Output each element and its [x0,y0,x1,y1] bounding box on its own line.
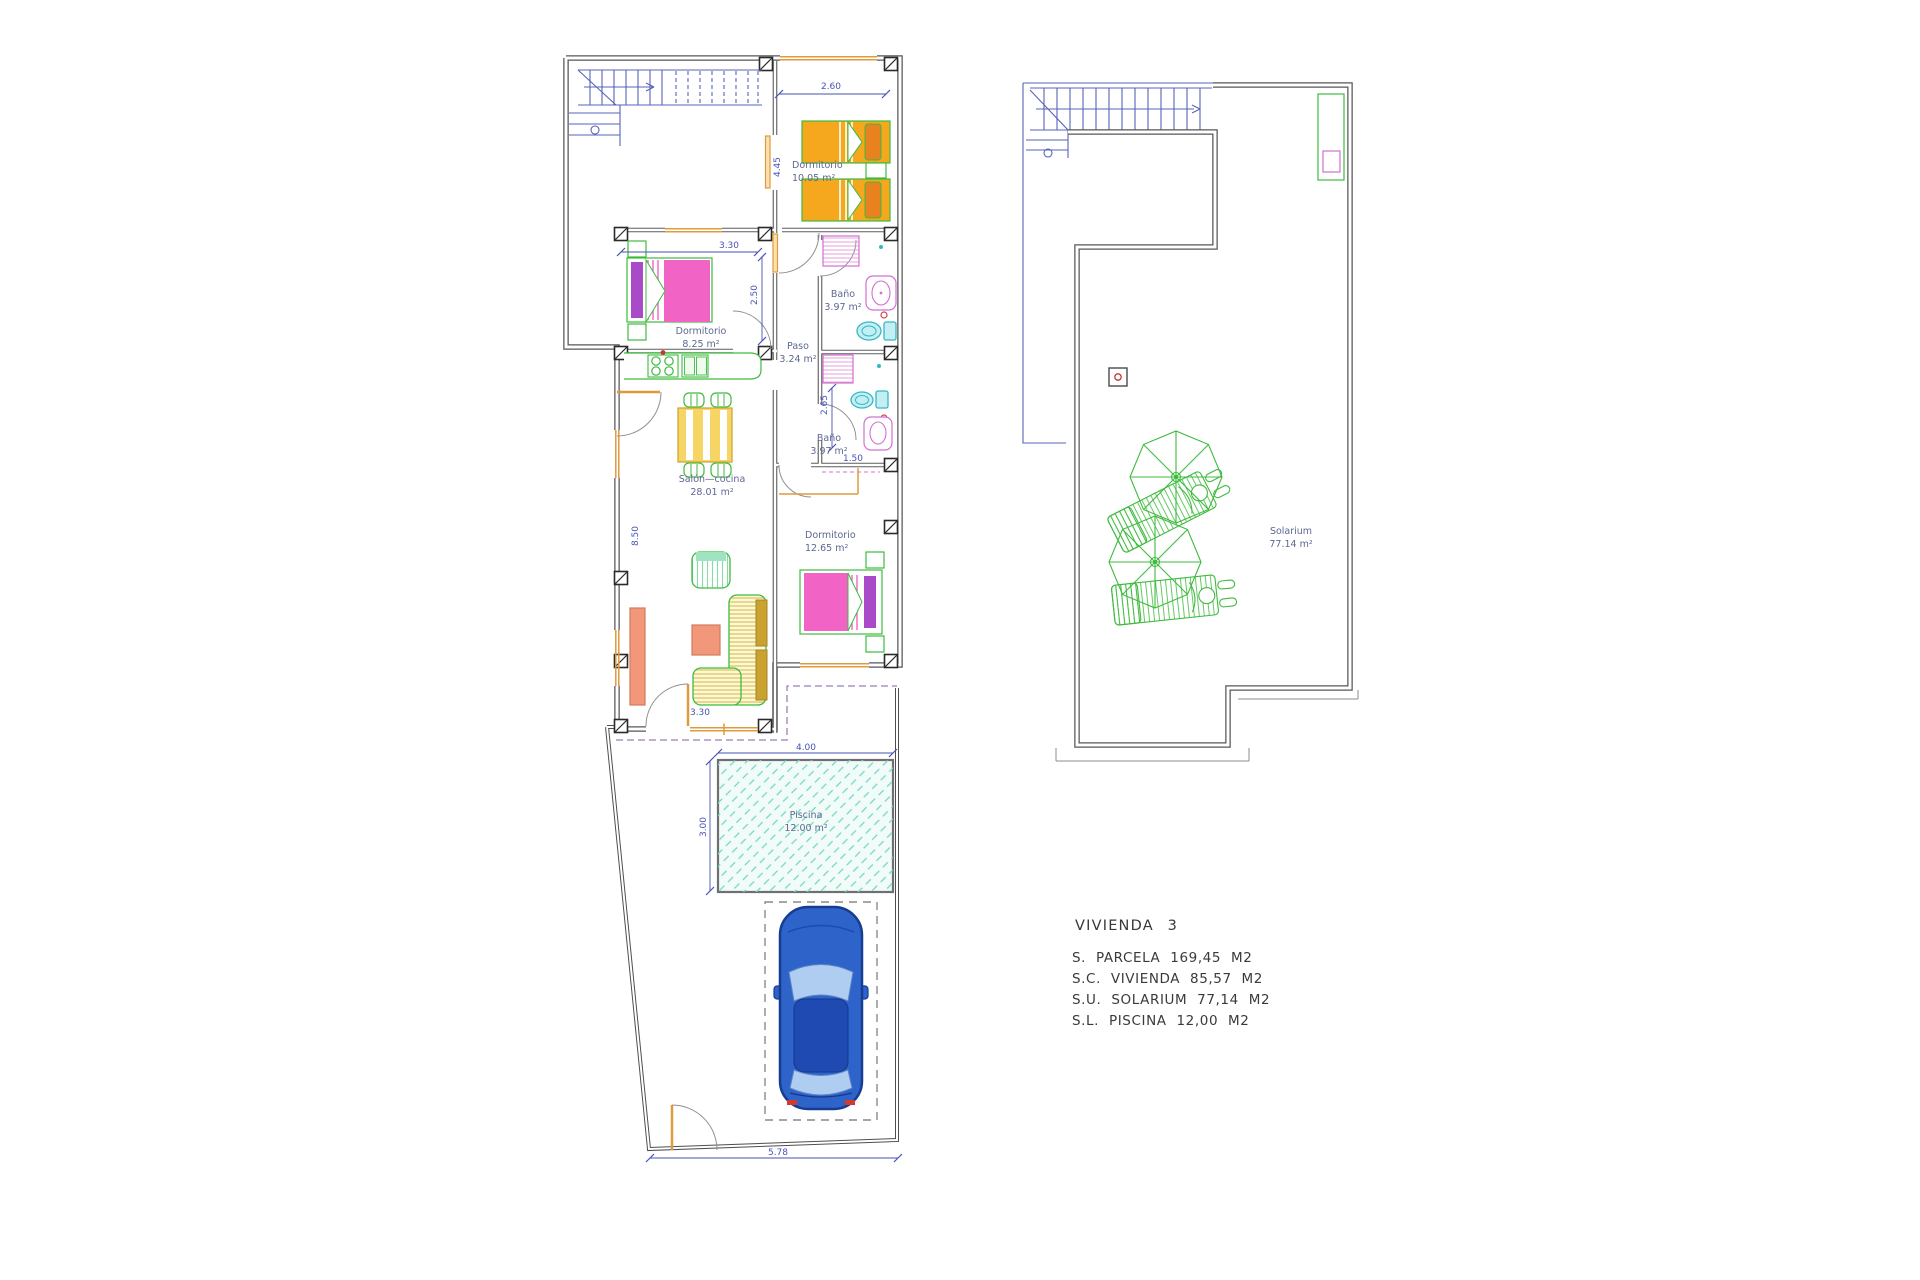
solarium-walls [1068,85,1350,745]
room-label-salon-area: 28.01 m² [690,487,733,498]
sun-lounger [1107,462,1235,553]
room-label-bath2-name: Baño [817,433,841,444]
floorplan-sheet: 2.60 4.45 3.30 2.50 2.65 1.50 8.50 3.30 … [0,0,1920,1280]
room-label-paso-area: 3.24 m² [779,354,816,365]
toilet-tank [884,322,896,340]
room-label-dorm3-area: 12.65 m² [805,543,848,554]
nightstand [866,636,884,652]
legend-line-vivienda: S.C. VIVIENDA 85,57 M2 [1072,971,1263,987]
dim-dorm1-height: 4.45 [773,157,783,177]
parasol-icon [1130,431,1222,523]
bathroom1-fixtures [823,236,896,340]
coffee-table [692,625,720,655]
door-leaf-dorm2 [773,234,778,272]
roof-drain [1109,368,1127,386]
toilet [851,392,873,408]
dim-plot-bottom: 5.78 [768,1148,788,1158]
room-label-piscina-name: Piscina [790,810,823,821]
room-label-solarium-name: Solarium [1270,526,1312,537]
dim-salon-entry: 3.30 [690,708,710,718]
sofa-chaise [693,668,741,705]
nightstand [628,241,646,257]
legend-line-parcela: S. PARCELA 169,45 M2 [1072,950,1252,966]
dim-dorm1-width: 2.60 [821,82,841,92]
room-label-bath1-area: 3.97 m² [824,302,861,313]
nightstand [628,324,646,340]
shower [823,355,853,383]
floor-plan-roof: Solarium 77.14 m² [1023,83,1358,761]
tv-unit [630,608,645,705]
room-label-dorm2-name: Dormitorio [676,326,727,337]
room-label-bath2-area: 3.97 m² [810,446,847,457]
sun-lounger [1111,573,1238,626]
parasol-icon [1109,516,1201,608]
room-label-paso-name: Paso [787,341,809,352]
room-label-dorm2-area: 8.25 m² [682,339,719,350]
floorplan-drawing: 2.60 4.45 3.30 2.50 2.65 1.50 8.50 3.30 … [0,0,1920,1280]
dining-set [678,393,732,477]
living-room [630,552,767,705]
room-label-bath1-name: Baño [831,289,855,300]
shower [823,236,859,266]
roof-skylight [1323,151,1340,172]
legend-line-piscina: S.L. PISCINA 12,00 M2 [1072,1013,1249,1029]
floor-plan-ground: 2.60 4.45 3.30 2.50 2.65 1.50 8.50 3.30 … [566,57,902,1162]
bed-dorm3 [779,468,884,652]
room-label-dorm3-name: Dormitorio [805,530,856,541]
room-label-solarium-area: 77.14 m² [1269,539,1312,550]
door-leaf-dorm1 [766,136,771,188]
bed-dorm1 [802,121,890,221]
room-label-piscina-area: 12.00 m² [784,823,827,834]
dim-pool-width: 4.00 [796,743,816,753]
staircase-roof [1026,88,1212,158]
drain [881,312,887,318]
room-label-salon-name: Salón—cocina [679,474,746,485]
dim-bath2-height: 2.65 [820,395,830,415]
legend-title: VIVIENDA 3 [1075,918,1178,934]
nightstand [866,552,884,568]
nightstand [866,163,886,178]
room-label-dorm1-name: Dormitorio [792,160,843,171]
kitchen [624,350,761,379]
dim-salon-height: 8.50 [631,526,641,546]
room-label-dorm1-area: 10.05 m² [792,173,835,184]
dim-pool-height: 3.00 [699,817,709,837]
staircase [569,70,762,146]
toilet-tank [876,391,888,408]
legend-line-solarium: S.U. SOLARIUM 77,14 M2 [1072,992,1270,1008]
car-icon [774,907,868,1109]
toilet [857,322,881,340]
legend: VIVIENDA 3 S. PARCELA 169,45 M2 S.C. VIV… [1072,918,1270,1029]
dim-dorm2-height: 2.50 [750,285,760,305]
dim-dorm2-width: 3.30 [719,241,739,251]
